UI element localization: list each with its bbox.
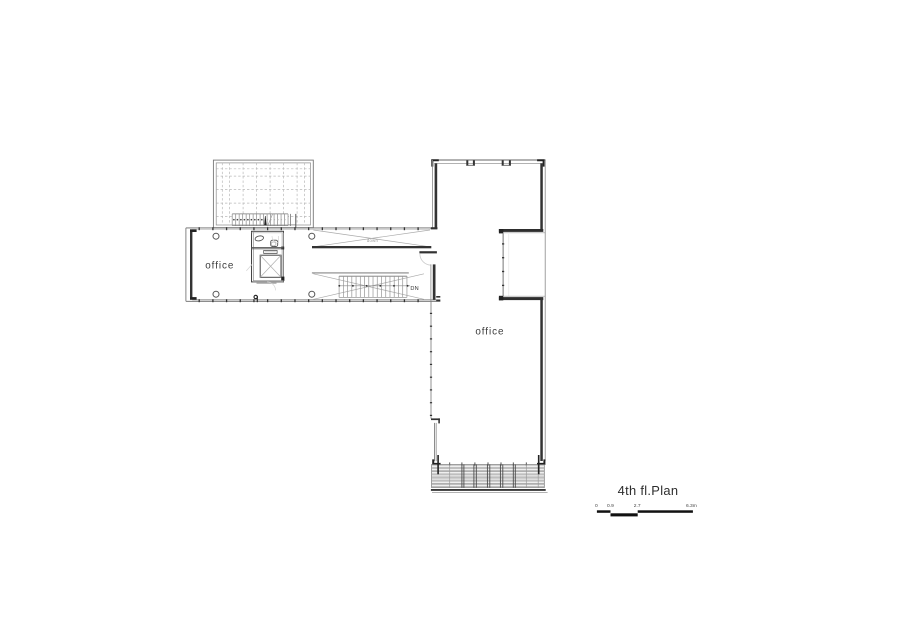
svg-text:0: 0	[595, 503, 598, 509]
svg-text:office: office	[475, 327, 504, 338]
svg-text:down: down	[367, 238, 379, 243]
svg-text:DN: DN	[410, 286, 418, 292]
svg-text:0.9: 0.9	[607, 503, 614, 509]
svg-text:6.3m: 6.3m	[686, 503, 697, 509]
svg-text:4th fl.Plan: 4th fl.Plan	[618, 483, 679, 498]
svg-text:2.7: 2.7	[634, 503, 641, 509]
svg-text:office: office	[205, 260, 234, 271]
